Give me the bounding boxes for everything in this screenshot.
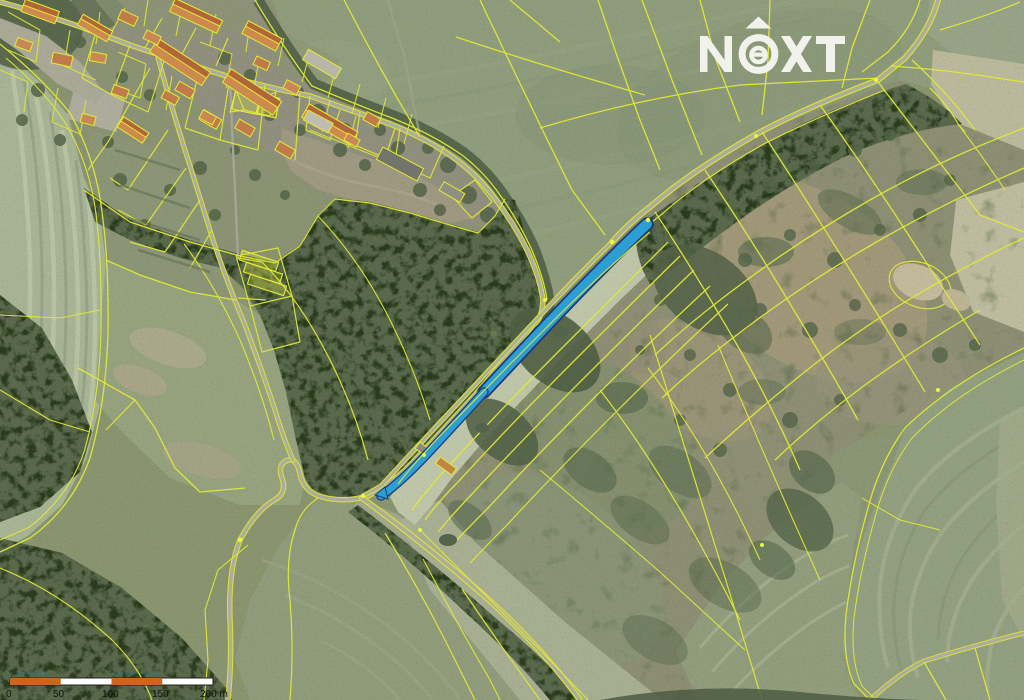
svg-text:150: 150	[152, 689, 169, 700]
svg-text:0: 0	[6, 689, 12, 700]
svg-text:200 m: 200 m	[200, 689, 228, 700]
svg-text:50: 50	[53, 689, 65, 700]
svg-text:100: 100	[102, 689, 119, 700]
